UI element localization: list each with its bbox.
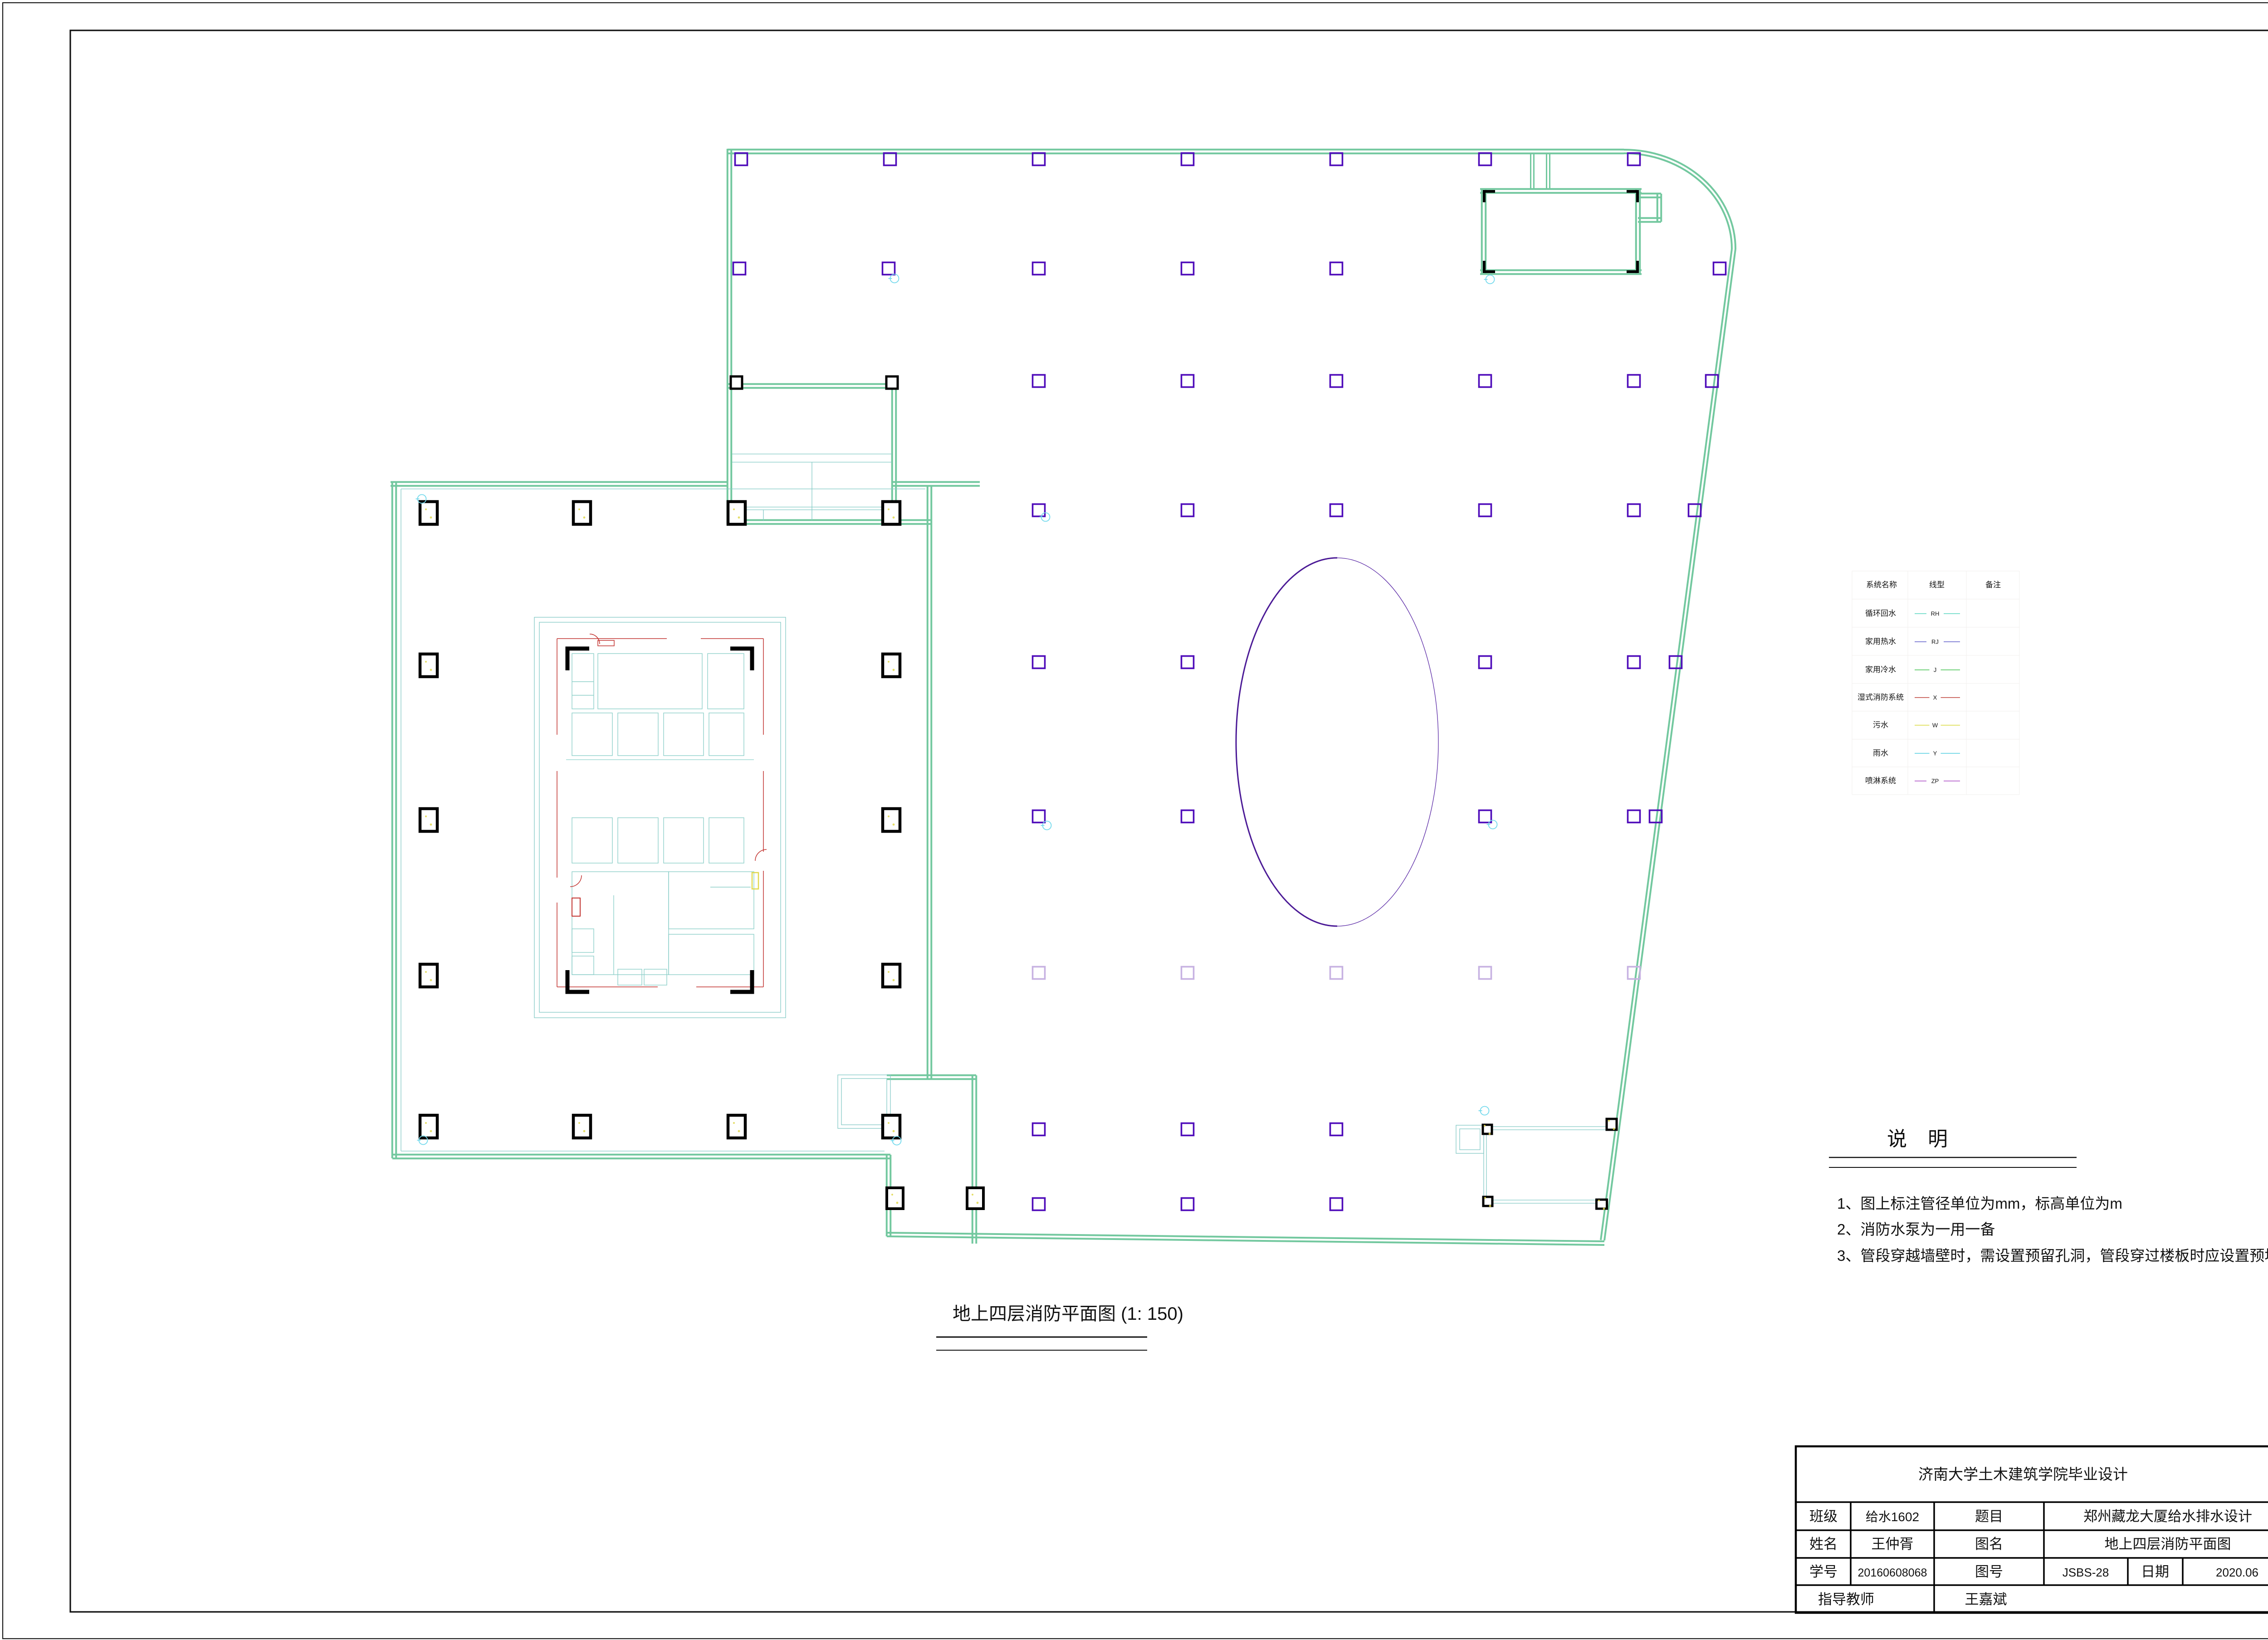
svg-text:线型: 线型 bbox=[1929, 581, 1945, 589]
svg-text:给水1602: 给水1602 bbox=[1866, 1510, 1919, 1524]
svg-text:地上四层消防平面图: 地上四层消防平面图 bbox=[2105, 1536, 2231, 1552]
svg-text:W: W bbox=[1932, 722, 1938, 729]
svg-text:2020.06: 2020.06 bbox=[2216, 1566, 2258, 1579]
svg-text:X: X bbox=[1933, 694, 1937, 701]
svg-text:家用冷水: 家用冷水 bbox=[1865, 665, 1896, 674]
svg-text:循环回水: 循环回水 bbox=[1865, 609, 1896, 618]
svg-text:地上四层消防平面图 (1: 150): 地上四层消防平面图 (1: 150) bbox=[953, 1304, 1183, 1324]
svg-text:郑州藏龙大厦给水排水设计: 郑州藏龙大厦给水排水设计 bbox=[2083, 1508, 2252, 1524]
svg-text:王仲胥: 王仲胥 bbox=[1872, 1536, 1914, 1552]
svg-text:说明: 说明 bbox=[1887, 1128, 1969, 1150]
svg-text:图名: 图名 bbox=[1975, 1536, 2003, 1552]
svg-text:污水: 污水 bbox=[1873, 721, 1888, 729]
svg-text:学号: 学号 bbox=[1809, 1564, 1838, 1580]
svg-text:JSBS-28: JSBS-28 bbox=[2063, 1566, 2109, 1579]
svg-text:J: J bbox=[1934, 667, 1937, 674]
svg-text:RJ: RJ bbox=[1931, 639, 1939, 645]
svg-text:姓名: 姓名 bbox=[1809, 1536, 1838, 1552]
svg-text:喷淋系统: 喷淋系统 bbox=[1865, 776, 1896, 785]
svg-text:Y: Y bbox=[1933, 750, 1937, 757]
svg-text:班级: 班级 bbox=[1809, 1508, 1838, 1524]
svg-text:王嘉斌: 王嘉斌 bbox=[1965, 1591, 2007, 1607]
svg-text:RH: RH bbox=[1931, 610, 1940, 617]
svg-text:系统名称: 系统名称 bbox=[1866, 581, 1897, 589]
svg-text:2、消防水泵为一用一备: 2、消防水泵为一用一备 bbox=[1837, 1221, 1995, 1238]
svg-text:家用热水: 家用热水 bbox=[1865, 637, 1896, 646]
svg-text:备注: 备注 bbox=[1985, 581, 2001, 589]
svg-text:济南大学土木建筑学院毕业设计: 济南大学土木建筑学院毕业设计 bbox=[1918, 1466, 2128, 1483]
svg-text:湿式消防系统: 湿式消防系统 bbox=[1857, 693, 1904, 702]
svg-text:图号: 图号 bbox=[1975, 1564, 2003, 1580]
svg-text:日期: 日期 bbox=[2141, 1564, 2169, 1580]
svg-text:20160608068: 20160608068 bbox=[1858, 1567, 1927, 1579]
svg-text:题目: 题目 bbox=[1975, 1508, 2003, 1524]
svg-text:雨水: 雨水 bbox=[1873, 749, 1888, 757]
svg-text:3、管段穿越墙壁时，需设置预留孔洞，管段穿过楼板时应设置预埋: 3、管段穿越墙壁时，需设置预留孔洞，管段穿过楼板时应设置预埋金属管套 bbox=[1837, 1247, 2268, 1264]
svg-text:1、图上标注管径单位为mm，标高单位为m: 1、图上标注管径单位为mm，标高单位为m bbox=[1837, 1195, 2122, 1212]
svg-text:指导教师: 指导教师 bbox=[1818, 1591, 1874, 1607]
svg-text:ZP: ZP bbox=[1931, 778, 1939, 785]
